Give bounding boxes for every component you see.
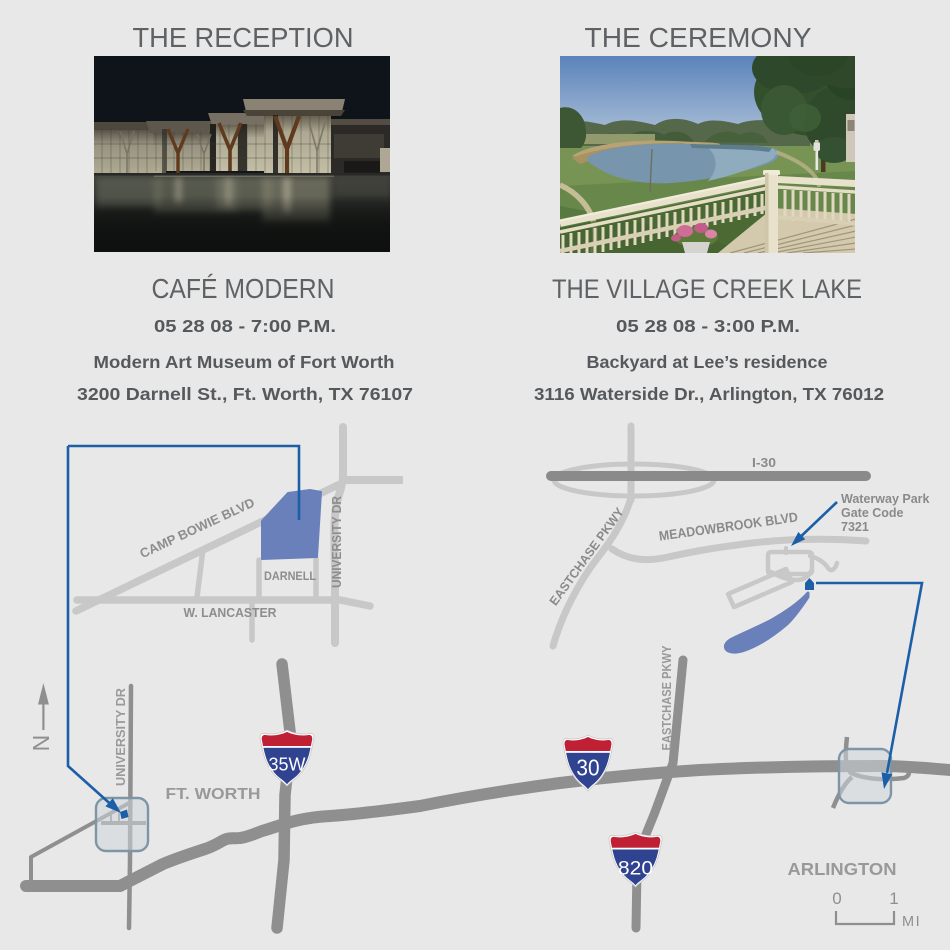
- svg-text:EASTCHASE PKWY: EASTCHASE PKWY: [660, 645, 674, 751]
- svg-text:I-30: I-30: [752, 456, 776, 470]
- svg-text:3116 Waterside Dr., Arlington,: 3116 Waterside Dr., Arlington, TX 76012: [534, 384, 884, 404]
- svg-text:N: N: [28, 735, 54, 752]
- svg-text:05 28 08 - 3:00 P.M.: 05 28 08 - 3:00 P.M.: [616, 316, 800, 336]
- svg-text:W. LANCASTER: W. LANCASTER: [184, 605, 278, 620]
- svg-text:UNIVERSITY DR: UNIVERSITY DR: [330, 496, 344, 588]
- svg-text:Modern Art Museum of Fort Wort: Modern Art Museum of Fort Worth: [94, 352, 395, 372]
- svg-text:FT. WORTH: FT. WORTH: [166, 786, 261, 803]
- svg-text:7321: 7321: [841, 520, 869, 534]
- svg-text:1: 1: [889, 889, 898, 908]
- svg-text:Backyard at Lee’s residence: Backyard at Lee’s residence: [587, 352, 828, 372]
- svg-text:THE CEREMONY: THE CEREMONY: [585, 22, 812, 53]
- svg-text:0: 0: [832, 889, 841, 908]
- svg-text:UNIVERSITY DR: UNIVERSITY DR: [114, 688, 128, 786]
- svg-text:DARNELL: DARNELL: [264, 571, 316, 583]
- svg-text:THE RECEPTION: THE RECEPTION: [133, 22, 354, 53]
- svg-text:MI: MI: [902, 914, 921, 930]
- svg-text:05 28 08 - 7:00 P.M.: 05 28 08 - 7:00 P.M.: [154, 316, 336, 336]
- svg-text:Waterway Park: Waterway Park: [841, 492, 930, 506]
- svg-text:820: 820: [618, 857, 653, 879]
- svg-text:CAFÉ MODERN: CAFÉ MODERN: [152, 273, 335, 304]
- svg-text:THE VILLAGE CREEK LAKE: THE VILLAGE CREEK LAKE: [552, 274, 862, 304]
- svg-text:Gate Code: Gate Code: [841, 506, 904, 520]
- svg-text:3200 Darnell St., Ft. Worth, T: 3200 Darnell St., Ft. Worth, TX 76107: [77, 384, 413, 404]
- svg-text:ARLINGTON: ARLINGTON: [788, 859, 897, 879]
- svg-text:30: 30: [576, 755, 599, 781]
- svg-text:35W: 35W: [269, 753, 306, 774]
